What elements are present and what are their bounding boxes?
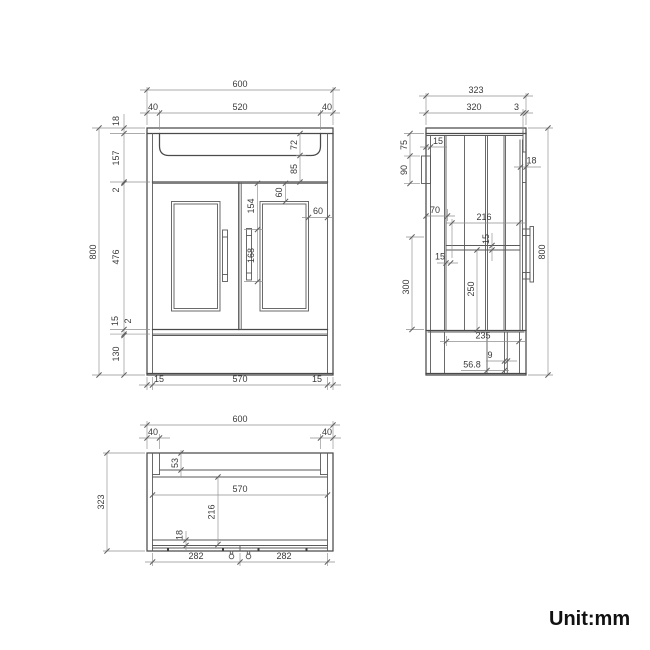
dim-label: 282 <box>276 551 291 561</box>
dim-label: 18 <box>175 530 185 540</box>
dim-label: 235 <box>475 331 490 341</box>
dim-label: 40 <box>322 427 332 437</box>
dim-label: 70 <box>430 205 440 215</box>
dim-label: 15 <box>312 374 322 384</box>
dim-label: 40 <box>148 427 158 437</box>
dim-label: 85 <box>289 164 299 174</box>
left-door-handle <box>223 230 228 282</box>
side-door-handle <box>523 227 534 283</box>
dim-label: 53 <box>170 458 180 468</box>
dim-label: 323 <box>468 85 483 95</box>
dim-label: 600 <box>232 414 247 424</box>
dim-label: 15 <box>110 316 120 326</box>
dim-label: 15 <box>433 136 443 146</box>
front-view-outline <box>147 128 333 375</box>
front-view-dimension-lines <box>92 87 341 390</box>
plan-view-dimension-labels: 600 40 40 323 53 570 216 18 282 282 <box>96 414 332 561</box>
dim-label: 40 <box>148 102 158 112</box>
dim-label: 60 <box>274 187 284 197</box>
dim-label: 18 <box>526 156 536 166</box>
dim-label: 300 <box>401 279 411 294</box>
dim-label: 600 <box>232 79 247 89</box>
dim-label: 157 <box>111 150 121 165</box>
dim-label: 75 <box>399 140 409 150</box>
front-view-dimension-labels: 600 40 520 40 18 157 2 72 85 476 60 154 … <box>88 79 332 384</box>
dim-label: 3 <box>514 102 519 112</box>
dim-label: 56.8 <box>463 360 481 370</box>
plan-view-dimension-ticks <box>104 422 335 564</box>
dim-label: 15 <box>481 234 491 244</box>
dim-label: 570 <box>232 484 247 494</box>
unit-label: Unit:mm <box>549 608 630 630</box>
plan-view-dimension-lines <box>103 421 341 566</box>
dim-label: 15 <box>154 374 164 384</box>
dim-label: 320 <box>466 102 481 112</box>
left-door-panel <box>172 202 221 312</box>
dim-label: 18 <box>111 116 121 126</box>
dim-label: 570 <box>232 374 247 384</box>
dim-label: 60 <box>313 206 323 216</box>
dim-label: 800 <box>88 244 98 259</box>
dim-label: 2 <box>111 187 121 192</box>
dim-label: 9 <box>487 350 492 360</box>
vanity-technical-drawing: 600 40 520 40 18 157 2 72 85 476 60 154 … <box>0 0 650 650</box>
dim-label: 2 <box>123 318 133 323</box>
plan-view: 600 40 40 323 53 570 216 18 282 282 <box>96 414 341 566</box>
dim-label: 168 <box>246 248 256 263</box>
dim-label: 72 <box>289 140 299 150</box>
side-view: 323 320 3 75 90 15 18 70 216 15 250 15 3… <box>399 85 553 378</box>
dim-label: 282 <box>188 551 203 561</box>
right-door-panel <box>260 202 309 312</box>
front-view-dimension-ticks <box>96 87 335 387</box>
dim-label: 323 <box>96 494 106 509</box>
dim-label: 130 <box>111 346 121 361</box>
dim-label: 800 <box>537 244 547 259</box>
technical-drawing-page: 600 40 520 40 18 157 2 72 85 476 60 154 … <box>0 0 650 650</box>
dim-label: 476 <box>111 249 121 264</box>
dim-label: 15 <box>435 252 445 262</box>
dim-label: 40 <box>322 102 332 112</box>
dim-label: 216 <box>476 212 491 222</box>
dim-label: 250 <box>466 281 476 296</box>
front-view: 600 40 520 40 18 157 2 72 85 476 60 154 … <box>88 79 341 390</box>
dim-label: 216 <box>207 504 217 519</box>
dim-label: 90 <box>399 165 409 175</box>
dim-label: 154 <box>246 198 256 213</box>
dim-label: 520 <box>232 102 247 112</box>
